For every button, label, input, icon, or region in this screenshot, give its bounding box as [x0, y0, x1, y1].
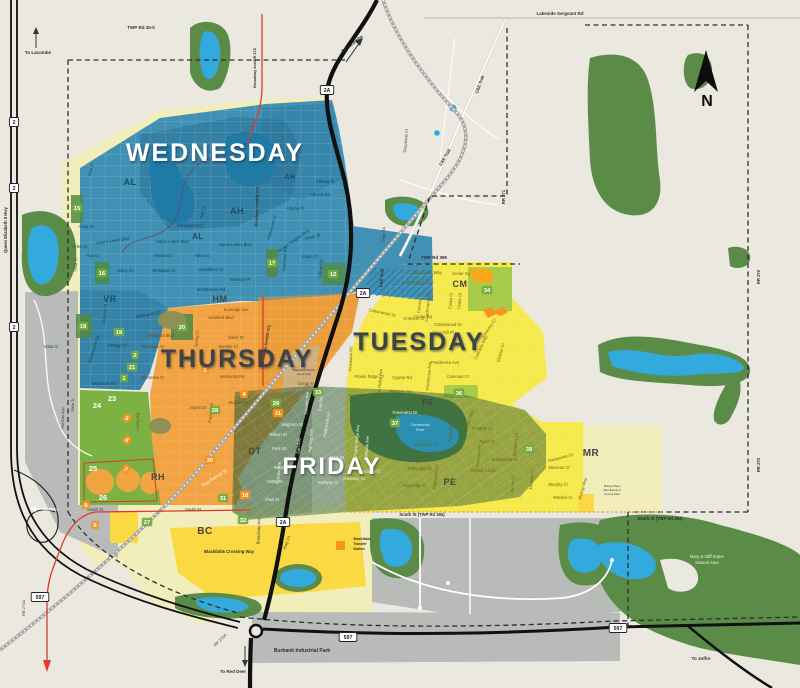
label-broadway-ave-rr-272: Broadway Ave/RR 272 [253, 48, 257, 88]
label-sunridge-ave: Sunridge Ave [224, 307, 250, 312]
label-coleman-cr: Coleman Cr [447, 374, 470, 379]
label-vista-tr: Vista Tr [70, 397, 75, 411]
label-broadway-ave: Broadway Ave [256, 517, 262, 545]
label-silver-dr: Silver Dr [228, 335, 245, 340]
highway-shield-2: 2 [9, 184, 18, 193]
svg-text:2A: 2A [324, 88, 331, 94]
district-code-rh: RH [151, 472, 165, 482]
label-duncan-ave: Duncan Ave [60, 406, 66, 428]
district-code-pe: PE [443, 477, 456, 487]
zone-chip-8: 8 [82, 501, 90, 509]
label-arrowwood-cl: Arrowwood Cl [177, 223, 203, 228]
label-rr-273a: RR 273A [21, 600, 26, 617]
svg-text:34: 34 [484, 288, 491, 294]
label-shull-st: Shull St [265, 497, 280, 502]
label-waghorn-st: Waghorn St [281, 422, 304, 427]
label-leung-rd: Leung Rd [135, 412, 141, 431]
label-athena-pl: Athena Pl [316, 179, 334, 184]
svg-text:11: 11 [275, 411, 282, 417]
label-plumtree-cr: Plumtree Cr [389, 389, 412, 394]
zone-label-wednesday: WEDNESDAY [126, 139, 304, 167]
highway-shield-2: 2 [9, 323, 18, 332]
district-code-pe: PE [422, 398, 434, 407]
label-transfer: Transfer [353, 542, 367, 546]
label-pondside-cr: Pondside Cr [414, 442, 438, 447]
label-valley-cr: Valley Cr [117, 268, 134, 273]
label-south-st-twp-rd-394: South St (TWP Rd 394) [637, 516, 683, 521]
waste-collection-map-page: N 2222A2A2A597597597 TWP Rd 40-0Lakeside… [0, 0, 800, 688]
district-code-cm: CM [453, 279, 468, 289]
district-code-al: AL [192, 232, 204, 241]
svg-text:37: 37 [392, 421, 398, 427]
label-palisades-st: Palisades St [408, 466, 432, 471]
label-wilson-st: Wilson St [269, 432, 288, 437]
transfer-station-icon [336, 541, 345, 550]
district-code-ah: AH [284, 174, 295, 181]
svg-text:597: 597 [344, 635, 353, 641]
label-parkridge-cl: Parkridge Cl [403, 483, 426, 488]
zone-chip-18: 18 [78, 322, 89, 330]
zone-chip-31: 31 [218, 494, 229, 502]
north-label: N [701, 93, 713, 110]
svg-text:2A: 2A [280, 520, 287, 526]
label-athena-rd: Athena Rd [310, 192, 330, 197]
town-map: N 2222A2A2A597597597 TWP Rd 40-0Lakeside… [0, 0, 800, 688]
zone-label-tuesday: TUESDAY [353, 328, 484, 356]
label-cedar-sq: Cedar Sq [452, 271, 470, 276]
label-hwy-2a: Hwy 2A [381, 227, 386, 241]
label-mitchell-cr: Mitchell Cr [553, 495, 573, 500]
label-cambridge-cl: Cambridge Cl [403, 280, 429, 285]
label-blackfalds: Blackfalds [354, 537, 371, 541]
svg-text:28: 28 [212, 408, 219, 414]
label-westbrooke-rd: Westbrooke Rd [197, 287, 226, 292]
label-to-lacombe: To Lacombe [25, 50, 52, 55]
zone-chip-21: 21 [127, 363, 138, 371]
district-code-vr: VR [103, 294, 117, 304]
label-aspen-dr: Aspen Dr [189, 405, 207, 410]
label-station: Station [353, 547, 365, 551]
zone-chip-36: 36 [454, 389, 465, 397]
zone-chip-10: 10 [240, 491, 251, 499]
zone-chip-30: 30 [205, 456, 216, 464]
label-pinewood-cl: Pinewood Cl [348, 393, 372, 398]
label-to-red-deer: To Red Deer [220, 669, 246, 674]
label-park-st: Park St [272, 446, 287, 451]
label-aspen-lakes-blvd: Aspen Lakes Blvd [155, 239, 189, 244]
label-to-joffre: To Joffre [692, 656, 711, 661]
zone-chip-16: 16 [97, 269, 108, 277]
zone-chip-2: 2 [131, 351, 139, 359]
highway-shield-597: 597 [31, 593, 49, 602]
label-south-st-twp-rd-394: South St (TWP Rd 394) [399, 512, 445, 517]
svg-text:2A: 2A [360, 291, 367, 297]
svg-text:31: 31 [220, 496, 227, 502]
label-portway-cl: Portway Cl [318, 480, 338, 485]
label-cottonwood-dr: Cottonwood Dr [434, 322, 463, 327]
zone-chip-4: 4 [240, 390, 248, 398]
label-south-st: South St [42, 507, 59, 512]
highway-shield-2a: 2A [276, 518, 289, 527]
svg-text:27: 27 [144, 520, 150, 526]
label-adina-cl: Adina Cl [194, 253, 210, 258]
svg-text:20: 20 [179, 325, 185, 331]
svg-text:19: 19 [116, 330, 123, 336]
label-womacks-rd: Womacks Rd [92, 381, 117, 386]
district-code-ah: AH [230, 206, 244, 216]
highway-shield-597: 597 [339, 633, 357, 642]
svg-text:597: 597 [614, 626, 623, 632]
label-westpoint-blvd: Westpoint Blvd [146, 333, 175, 338]
svg-text:17: 17 [269, 261, 275, 267]
label-twp-rd-40-0: TWP Rd 40-0 [127, 25, 155, 30]
label-palmer-circle: Palmer Circle [470, 468, 496, 473]
svg-text:10: 10 [242, 493, 248, 499]
highway-shield-2a: 2A [356, 289, 369, 298]
label-womacks-rd: Womacks Rd [220, 374, 245, 379]
label-pinetree-cl: Pinetree Cl [472, 426, 493, 431]
zone-chip-11: 11 [273, 409, 284, 417]
svg-text:38: 38 [526, 447, 533, 453]
label-26: 26 [99, 493, 107, 502]
zone-chip-17: 17 [267, 259, 278, 267]
zone-label-thursday: THURSDAY [161, 345, 314, 373]
label-south-st: South St [185, 507, 202, 512]
label-natural-area: Natural Area [695, 560, 719, 565]
svg-text:2: 2 [133, 353, 136, 359]
district-code-mr: MR [583, 448, 600, 459]
label-anna-cl: Anna Cl [79, 224, 94, 229]
label-woodbine-cl: Woodbine Cl [199, 267, 223, 272]
district-code-al: AL [124, 177, 137, 187]
zone-chip-1: 1 [120, 374, 128, 382]
label-westview-cr: Westview Cr [141, 375, 165, 380]
label-park-st: Park St [414, 455, 429, 460]
label-ava-cr: Ava Cr [87, 253, 100, 258]
label-almond-cr: Almond Cr [153, 253, 173, 258]
label-stanford-blvd: Stanford Blvd [208, 315, 234, 320]
zone-chip-19: 19 [114, 328, 125, 336]
svg-text:2: 2 [13, 325, 16, 331]
label-aztec-cr: Aztec Cr [302, 254, 319, 259]
highway-shield-597: 597 [609, 624, 627, 633]
label-24: 24 [93, 401, 102, 410]
svg-text:32: 32 [240, 518, 246, 524]
label-rr-270: RR 270 [756, 457, 761, 472]
label-park: Park [416, 427, 424, 432]
label-23: 23 [108, 394, 116, 403]
highway-shield-2a: 2A [320, 86, 333, 95]
zone-chip-37: 37 [390, 419, 401, 427]
svg-text:2: 2 [13, 120, 16, 126]
label-coachman-way: Coachman Way [412, 270, 443, 275]
svg-text:21: 21 [129, 365, 136, 371]
district-code-bc: BC [197, 526, 212, 537]
label-cyprus-rd: Cyprus Rd [392, 375, 412, 380]
svg-text:597: 597 [36, 595, 45, 601]
label-gregg-st: Gregg St [298, 381, 316, 386]
zone-label-friday: FRIDAY [282, 453, 381, 480]
zone-chip-38: 38 [524, 445, 535, 453]
svg-text:36: 36 [456, 391, 463, 397]
label-lakeside-sergeant-rd: Lakeside Sergeant Rd [536, 11, 583, 16]
zone-chip-27: 27 [142, 518, 153, 526]
zone-chip-15: 15 [72, 204, 83, 212]
svg-text:29: 29 [273, 401, 280, 407]
zone-chip-20: 20 [177, 323, 188, 331]
zone-chip-29: 29 [271, 399, 282, 407]
zone-chip-28: 28 [210, 406, 221, 414]
label-homes-park: Homes Park [604, 492, 620, 496]
district-code-dt: DT [249, 446, 262, 456]
district-code-hm: HM [213, 294, 228, 304]
label-vista-cl: Vista Cl [44, 344, 58, 349]
zone-chip-34: 34 [482, 286, 493, 294]
svg-text:18: 18 [80, 324, 87, 330]
highway-shield-2: 2 [9, 118, 18, 127]
svg-text:16: 16 [99, 271, 106, 277]
svg-text:2: 2 [13, 186, 16, 192]
roundabout [250, 625, 262, 637]
zone-chip-32: 32 [238, 516, 249, 524]
label-arlen-cl: Arlen Cl [73, 244, 88, 249]
label-queen-elizabeth-ii-hwy: Queen Elizabeth II Hwy [3, 206, 8, 253]
label-eastpointe-dr: Eastpointe Dr [492, 457, 518, 462]
label-panorama-dr: Panorama Dr [393, 410, 419, 415]
label-twp-rd-395: TWP Rd 395 [421, 255, 447, 260]
label-blackfalds-crossing-way: Blackfalds Crossing Way [204, 549, 255, 554]
label-piper-cl: Piper Cl [480, 439, 495, 444]
svg-text:12: 12 [330, 272, 336, 278]
label-mary-cliff-soper: Mary & Cliff Soper [690, 554, 725, 559]
label-25: 25 [89, 464, 97, 473]
label-athena-pl: Athena Pl [286, 206, 304, 211]
svg-text:15: 15 [74, 206, 81, 212]
zone-chip-9: 9 [91, 521, 99, 529]
label-murphy-cl: Murphy Cl [548, 482, 567, 487]
label-winston-pl: Winston Pl [230, 277, 250, 282]
label-stanley-st: Stanley St [228, 400, 248, 405]
svg-text:30: 30 [207, 458, 213, 464]
label-burbank-industrial-park: Burbank Industrial Park [274, 648, 331, 654]
label-rr-271: RR 271 [501, 189, 506, 204]
zone-chip-12: 12 [328, 270, 339, 278]
zone-chip-33: 33 [313, 388, 324, 396]
label-cedar-sq: Cedar Sq [414, 314, 432, 319]
label-aspen-lakes-blvd: Aspen Lakes Blvd [218, 242, 252, 247]
svg-text:33: 33 [315, 390, 322, 396]
label-rr-270: RR 270 [756, 269, 761, 284]
label-ponderosa-ave: Ponderosa Ave [431, 360, 460, 365]
label-westgate-cr: Westgate Cr [152, 268, 176, 273]
label-vintage-cl: Vintage Cl [107, 343, 126, 348]
label-maclean-cl: Maclean Cl [549, 465, 570, 470]
